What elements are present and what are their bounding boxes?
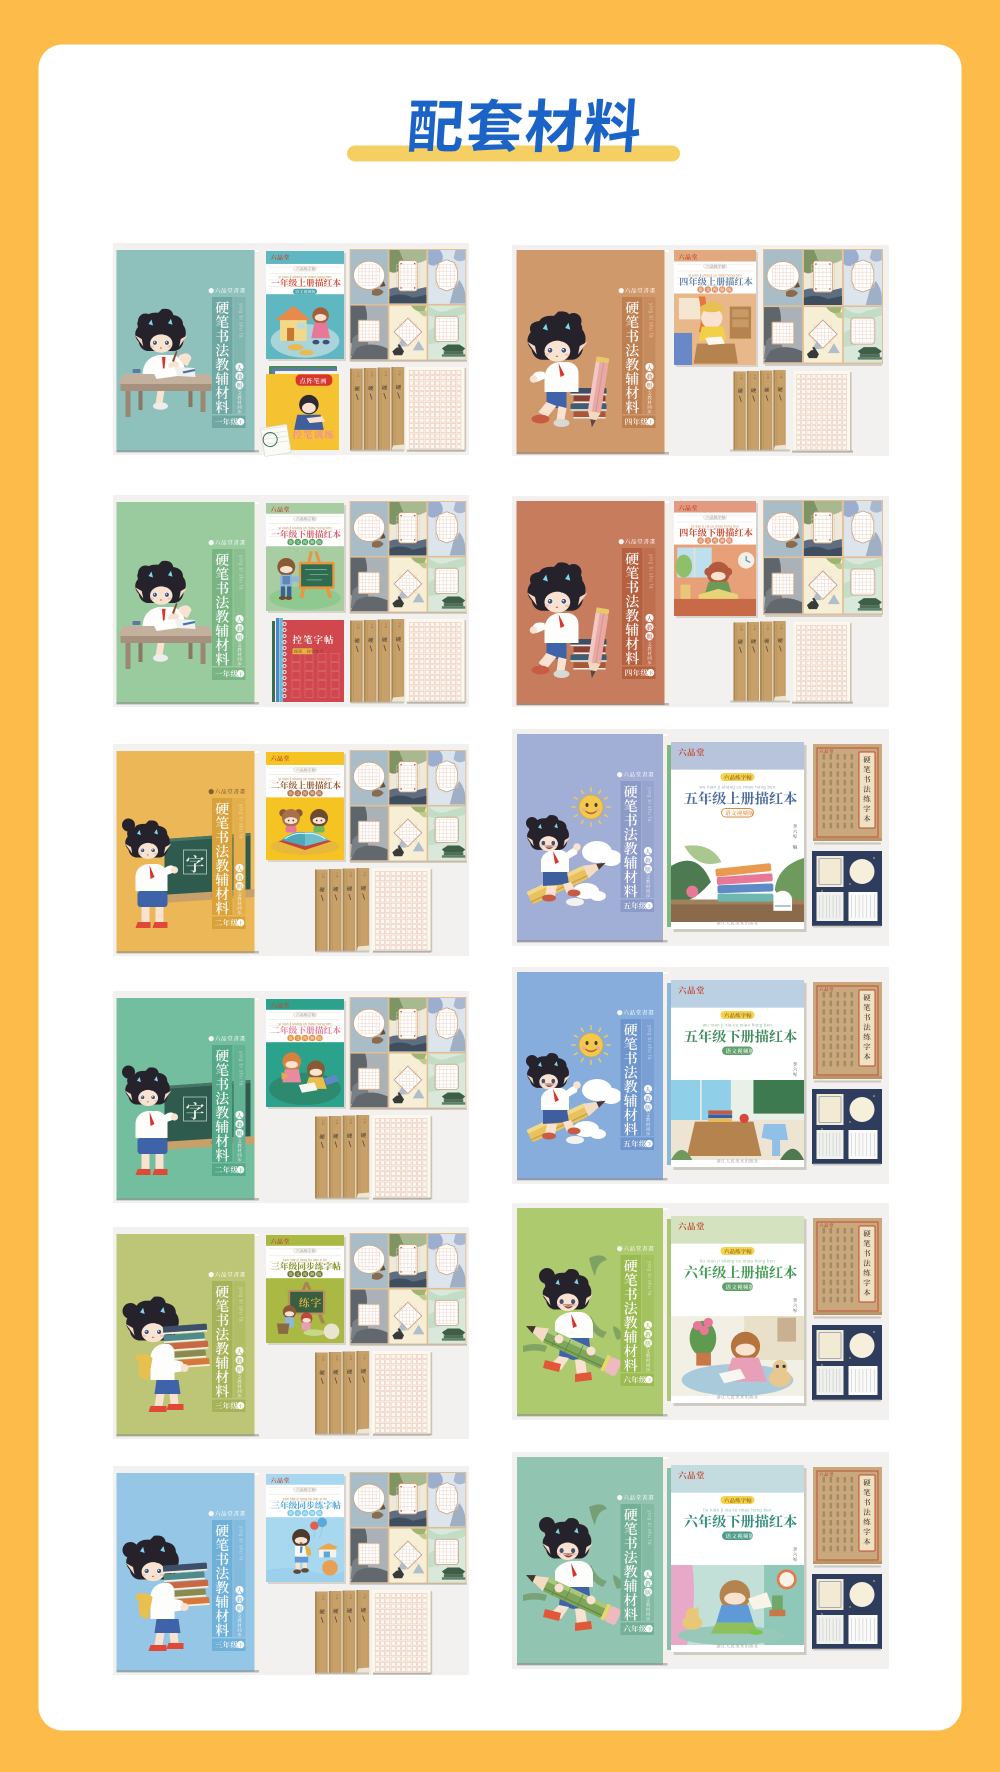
svg-text:ying bi shu fa: ying bi shu fa	[648, 554, 654, 589]
svg-text:ying bi shu fa: ying bi shu fa	[238, 1051, 244, 1086]
svg-text:ying bi shu fa: ying bi shu fa	[646, 1261, 652, 1296]
svg-text:ying bi shu fa: ying bi shu fa	[238, 1526, 244, 1561]
svg-text:wu nian ji shang ce miao hong: wu nian ji shang ce miao hong ben	[699, 785, 775, 790]
svg-text:ying bi shu fa: ying bi shu fa	[238, 303, 244, 338]
svg-text:liu nian ji xia ce miao hong b: liu nian ji xia ce miao hong ben	[703, 1508, 772, 1513]
svg-text:san nian ji tong bu lian zi ti: san nian ji tong bu lian zi tie	[283, 1258, 327, 1262]
svg-text:san nian ji tong bu lian zi ti: san nian ji tong bu lian zi tie	[283, 1497, 327, 1501]
svg-text:ying bi shu fa: ying bi shu fa	[646, 1510, 652, 1545]
svg-text:ying bi shu fa: ying bi shu fa	[238, 1287, 244, 1322]
svg-text:yi nian ji shang ce miao hong: yi nian ji shang ce miao hong ben	[278, 1022, 331, 1026]
svg-text:ying bi shu fa: ying bi shu fa	[646, 1025, 652, 1060]
svg-text:yi nian ji shang ce miao hong: yi nian ji shang ce miao hong ben	[278, 777, 331, 781]
svg-text:ying bi shu fa: ying bi shu fa	[646, 787, 652, 822]
svg-text:ying bi shu fa: ying bi shu fa	[238, 555, 244, 590]
svg-text:yi nian ji shang ce miao hong: yi nian ji shang ce miao hong ben	[278, 275, 331, 279]
svg-text:yi nian ji shang ce miao hong: yi nian ji shang ce miao hong ben	[278, 526, 331, 530]
svg-text:ying bi shu fa: ying bi shu fa	[238, 804, 244, 839]
svg-text:si nian ji xia ce miao hong be: si nian ji xia ce miao hong ben	[691, 525, 739, 529]
svg-text:ying bi shu fa: ying bi shu fa	[648, 303, 654, 338]
svg-text:si nian ji shang ce miao hong: si nian ji shang ce miao hong ben	[688, 274, 741, 278]
svg-text:liu nian ji shang ce miao hong: liu nian ji shang ce miao hong ben	[700, 1259, 775, 1264]
svg-text:wu nian ji xia ce miao hong be: wu nian ji xia ce miao hong ben	[703, 1023, 773, 1028]
